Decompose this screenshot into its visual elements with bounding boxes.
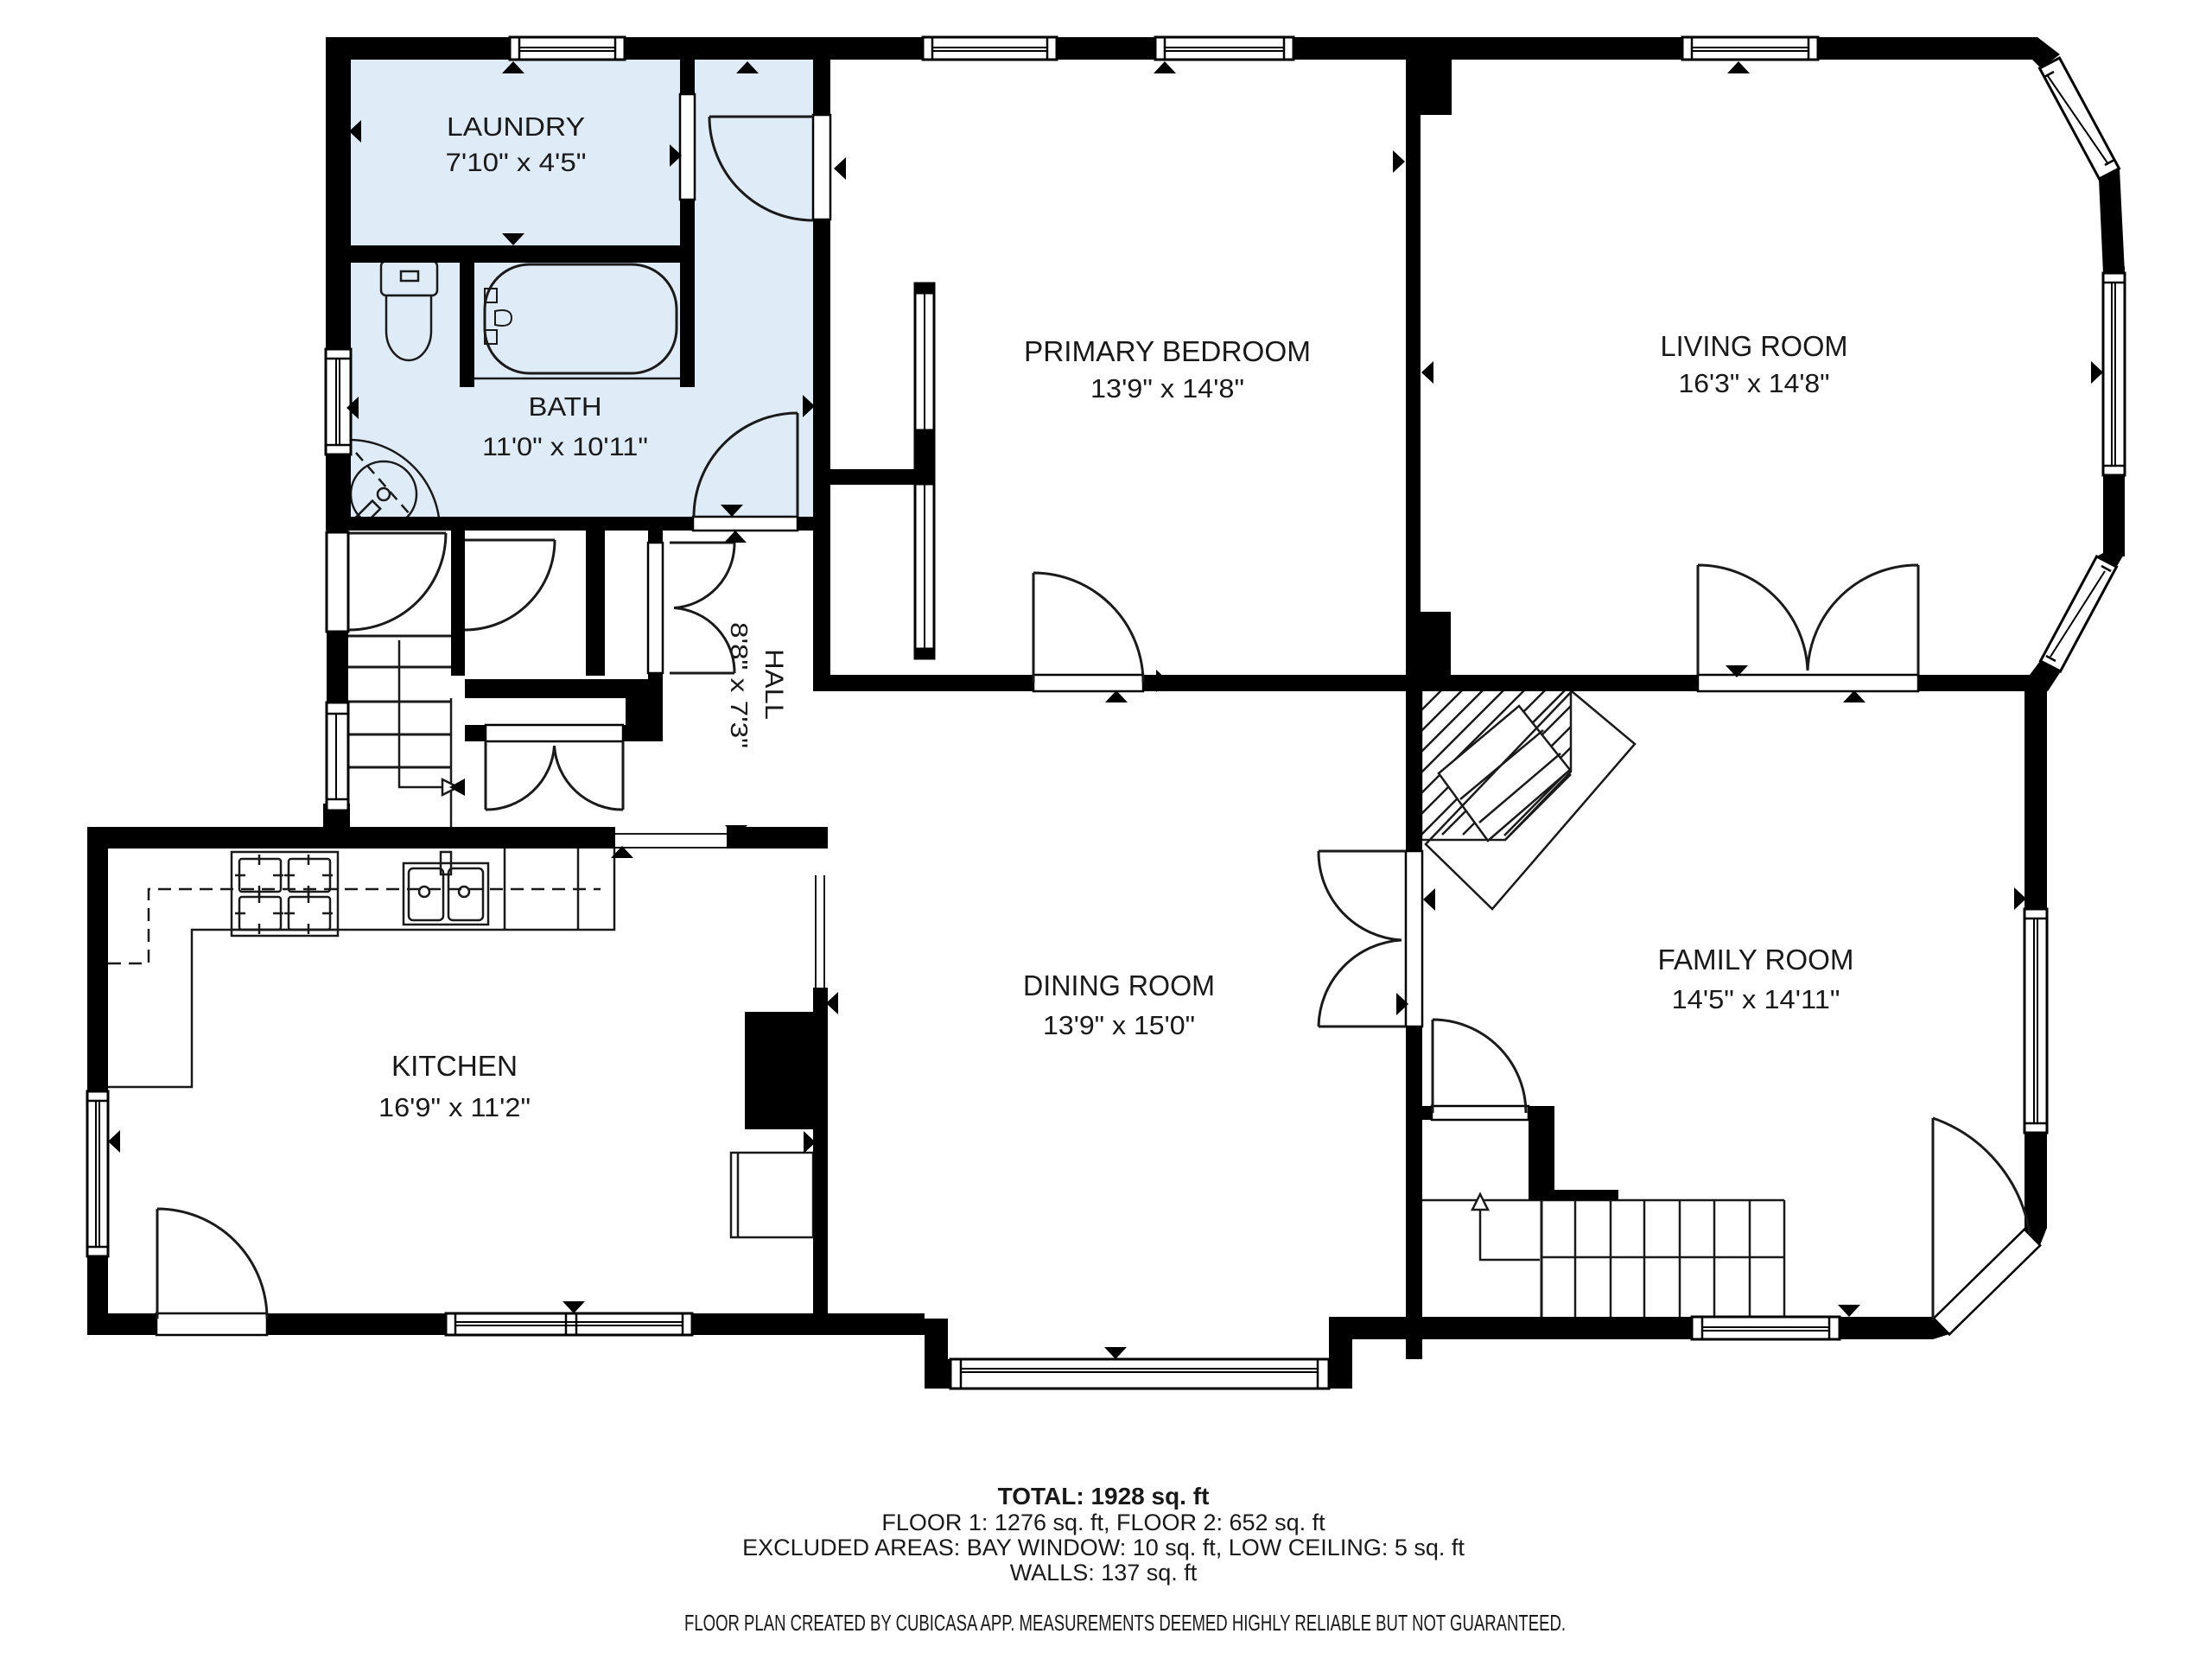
svg-text:PRIMARY BEDROOM: PRIMARY BEDROOM [1024,335,1311,367]
svg-text:16'3" x 14'8": 16'3" x 14'8" [1679,368,1830,398]
svg-text:WALLS: 137 sq. ft: WALLS: 137 sq. ft [1010,1560,1198,1586]
svg-text:EXCLUDED AREAS: BAY WINDOW: 10: EXCLUDED AREAS: BAY WINDOW: 10 sq. ft, L… [742,1535,1465,1560]
svg-text:13'9" x 14'8": 13'9" x 14'8" [1090,373,1244,404]
svg-text:16'9" x 11'2": 16'9" x 11'2" [378,1092,531,1122]
svg-text:DINING ROOM: DINING ROOM [1023,969,1215,1001]
svg-text:7'10" x 4'5": 7'10" x 4'5" [446,149,587,177]
svg-text:14'5" x 14'11": 14'5" x 14'11" [1672,984,1840,1014]
svg-text:FLOOR PLAN CREATED BY CUBICASA: FLOOR PLAN CREATED BY CUBICASA APP. MEAS… [684,1610,1566,1636]
svg-text:FAMILY ROOM: FAMILY ROOM [1658,944,1854,976]
svg-text:8'8" x 7'3": 8'8" x 7'3" [726,622,753,748]
svg-text:HALL: HALL [760,649,788,720]
svg-text:LAUNDRY: LAUNDRY [447,111,585,142]
svg-text:FLOOR 1: 1276 sq. ft, FLOOR 2:: FLOOR 1: 1276 sq. ft, FLOOR 2: 652 sq. f… [881,1510,1325,1535]
svg-text:KITCHEN: KITCHEN [391,1050,518,1082]
svg-text:11'0" x 10'11": 11'0" x 10'11" [482,433,648,461]
svg-text:BATH: BATH [529,391,602,422]
svg-text:LIVING ROOM: LIVING ROOM [1661,330,1848,362]
svg-text:13'9" x 15'0": 13'9" x 15'0" [1043,1010,1195,1040]
svg-text:TOTAL: 1928 sq. ft: TOTAL: 1928 sq. ft [998,1483,1210,1510]
